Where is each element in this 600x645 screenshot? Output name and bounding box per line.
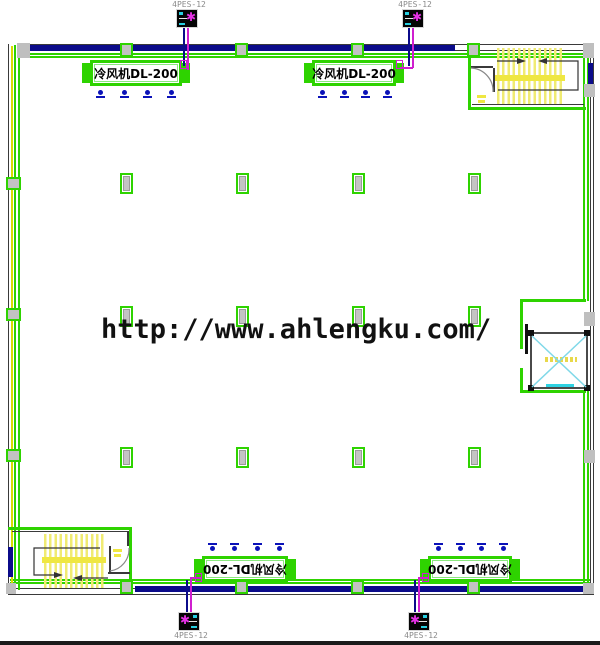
panel-label: 4PES-12 bbox=[166, 631, 216, 640]
panel-detail bbox=[193, 615, 197, 618]
panel-detail bbox=[421, 626, 427, 628]
pipe-connector bbox=[396, 60, 403, 69]
panel-detail bbox=[405, 12, 409, 15]
pipe-connector bbox=[422, 573, 429, 582]
panel-detail bbox=[179, 12, 183, 15]
panel-detail bbox=[405, 18, 413, 19]
electrical-panel: ✱ bbox=[176, 9, 198, 28]
refrigerant-pipe bbox=[186, 580, 188, 612]
panel-detail bbox=[189, 621, 197, 622]
panel-detail bbox=[191, 626, 197, 628]
panel-detail bbox=[405, 23, 411, 25]
electrical-panel: ✱ bbox=[402, 9, 424, 28]
watermark-url: http://www.ahlengku.com/ bbox=[101, 314, 491, 345]
panel-detail bbox=[423, 615, 427, 618]
stair-tr-arrow-right bbox=[517, 58, 526, 64]
pipe-connector bbox=[195, 573, 202, 582]
fan-icon: ✱ bbox=[410, 614, 420, 626]
stair-bl-path bbox=[34, 548, 100, 575]
panel-detail bbox=[179, 23, 185, 25]
fan-icon: ✱ bbox=[180, 614, 190, 626]
stair-bl-arrow-right bbox=[54, 572, 63, 578]
floor-plan-canvas: 冷风机DL-200 冷风机DL-200 冷风机DL-200 冷风机DL-200 bbox=[0, 0, 600, 645]
stair-bl-arrow-left bbox=[73, 575, 82, 581]
stair-tr-arrow-left bbox=[538, 58, 547, 64]
refrigerant-pipe bbox=[414, 580, 416, 612]
refrigerant-pipe bbox=[190, 577, 192, 612]
panel-detail bbox=[179, 18, 187, 19]
stair-tr-door-arc bbox=[471, 68, 493, 92]
refrigerant-pipe bbox=[412, 28, 414, 68]
refrigerant-pipe bbox=[418, 577, 420, 612]
panel-label: 4PES-12 bbox=[390, 0, 440, 9]
stair-bl-door-arc bbox=[110, 548, 129, 571]
fan-icon: ✱ bbox=[186, 11, 196, 23]
electrical-panel: ✱ bbox=[408, 612, 430, 631]
stair-tr-path bbox=[498, 61, 578, 90]
refrigerant-pipe bbox=[187, 28, 189, 70]
fan-icon: ✱ bbox=[412, 11, 422, 23]
panel-detail bbox=[419, 621, 427, 622]
refrigerant-pipe bbox=[408, 28, 410, 66]
pipe-connector bbox=[180, 60, 187, 69]
electrical-panel: ✱ bbox=[178, 612, 200, 631]
panel-label: 4PES-12 bbox=[396, 631, 446, 640]
panel-label: 4PES-12 bbox=[164, 0, 214, 9]
